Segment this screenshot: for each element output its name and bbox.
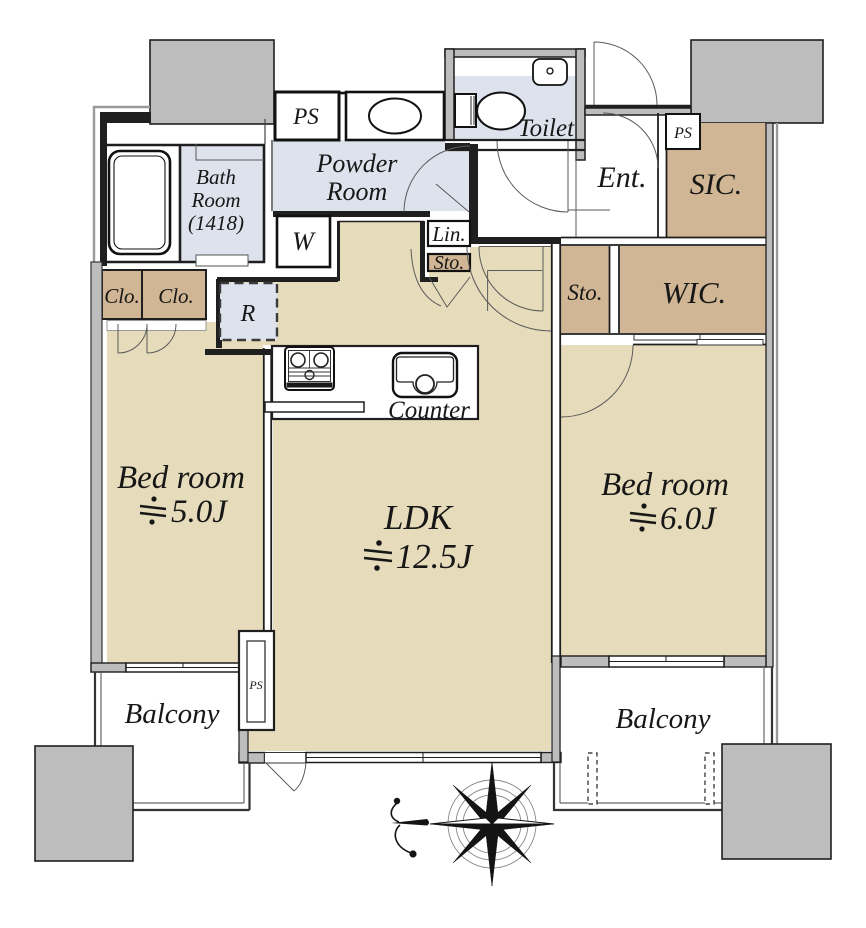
svg-text:PS: PS	[248, 678, 262, 692]
svg-text:Sto.: Sto.	[567, 280, 602, 305]
svg-text:Balcony: Balcony	[124, 698, 219, 730]
svg-text:Clo.: Clo.	[104, 284, 140, 308]
svg-text:Room: Room	[326, 177, 388, 206]
svg-text:PS: PS	[673, 125, 692, 142]
svg-text:Lin.: Lin.	[431, 222, 465, 246]
svg-text:LDK: LDK	[383, 498, 454, 537]
svg-text:Balcony: Balcony	[615, 703, 710, 735]
svg-text:Room: Room	[191, 188, 241, 212]
svg-text:Toilet: Toilet	[518, 115, 575, 142]
svg-text:WIC.: WIC.	[662, 275, 727, 310]
svg-text:(1418): (1418)	[188, 211, 244, 235]
svg-text:6.0J: 6.0J	[660, 501, 717, 537]
svg-text:Bed room: Bed room	[601, 467, 729, 503]
svg-text:Bed room: Bed room	[117, 460, 245, 496]
svg-text:Bath: Bath	[196, 165, 236, 189]
svg-text:W: W	[292, 227, 316, 256]
svg-text:R: R	[240, 301, 256, 327]
svg-text:Ent.: Ent.	[596, 161, 646, 194]
svg-text:PS: PS	[292, 104, 319, 129]
svg-text:12.5J: 12.5J	[396, 537, 474, 576]
svg-text:5.0J: 5.0J	[171, 494, 228, 530]
svg-text:Powder: Powder	[316, 149, 399, 178]
svg-text:SIC.: SIC.	[690, 168, 743, 201]
svg-text:Sto.: Sto.	[434, 252, 465, 274]
svg-text:Counter: Counter	[388, 397, 470, 424]
svg-text:Clo.: Clo.	[158, 284, 194, 308]
